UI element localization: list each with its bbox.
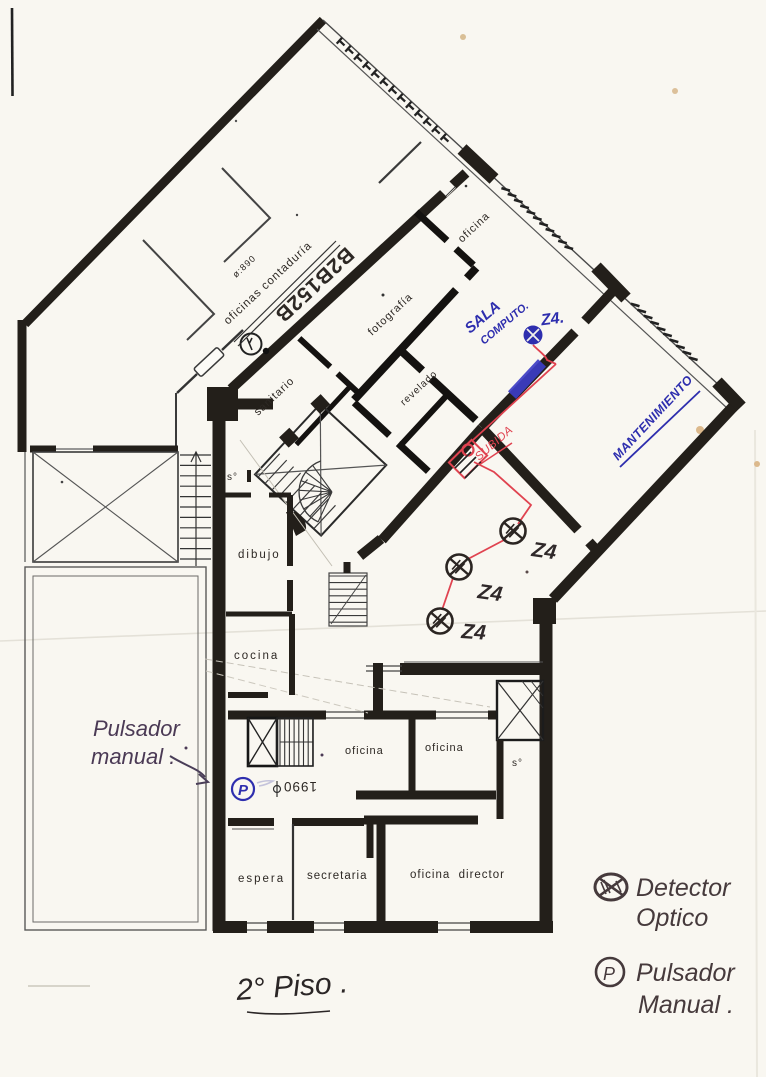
svg-text:Manual .: Manual . bbox=[638, 991, 734, 1019]
svg-text:espera: espera bbox=[238, 873, 285, 885]
svg-text:1990: 1990 bbox=[283, 779, 317, 794]
svg-text:s°: s° bbox=[512, 758, 523, 769]
svg-text:Z4: Z4 bbox=[475, 580, 504, 606]
svg-text:Optico: Optico bbox=[636, 904, 708, 932]
svg-text:Z4.: Z4. bbox=[539, 309, 565, 329]
svg-text:dibujo: dibujo bbox=[238, 549, 281, 561]
svg-text:oficina: oficina bbox=[345, 745, 384, 757]
svg-text:Z4: Z4 bbox=[460, 620, 487, 645]
svg-text:Detector: Detector bbox=[636, 874, 732, 902]
svg-text:oficina: oficina bbox=[425, 742, 464, 754]
svg-text:s°: s° bbox=[227, 472, 238, 483]
svg-text:P: P bbox=[603, 964, 615, 984]
svg-text:manual .: manual . bbox=[91, 744, 175, 769]
svg-text:Pulsador: Pulsador bbox=[636, 959, 736, 987]
svg-text:Z4: Z4 bbox=[529, 538, 558, 564]
svg-text:secretaria: secretaria bbox=[307, 870, 368, 882]
svg-text:oficina director: oficina director bbox=[410, 869, 505, 881]
svg-text:P: P bbox=[238, 782, 249, 799]
svg-text:Pulsador: Pulsador bbox=[93, 716, 182, 741]
svg-text:cocina: cocina bbox=[234, 650, 279, 662]
